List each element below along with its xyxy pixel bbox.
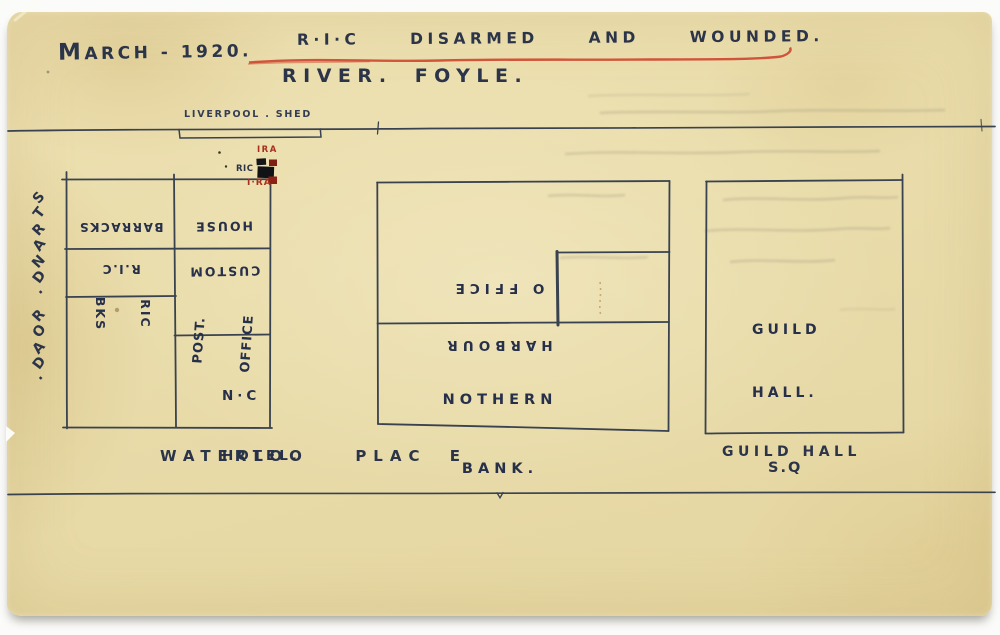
liverpool-shed-label: LIVERPOOL . SHED	[184, 109, 312, 120]
ira-black-square	[256, 158, 266, 165]
ink-speck	[225, 165, 227, 167]
title-red-underline	[248, 48, 791, 65]
ira-red-square	[269, 160, 277, 167]
label-line: HALL.	[752, 383, 821, 404]
label-line: BARRACKS	[70, 220, 172, 234]
label-line: GUILD	[752, 320, 821, 341]
marker-label-ira-upper: IRA	[257, 145, 278, 155]
ink-speck	[218, 151, 221, 154]
river-foyle-label: RIVER. FOYLE.	[282, 65, 528, 87]
liverpool-shed-outline	[179, 129, 321, 138]
ink-speck	[47, 71, 50, 74]
building-label-custom-house: CUSTOM HOUSE	[178, 188, 270, 310]
label-line: NOTHERN	[420, 389, 580, 412]
label-line: O FFICE	[420, 278, 575, 297]
marker-label-ric: RIC	[236, 164, 253, 174]
quay-tick	[981, 120, 982, 132]
marker-label-ira-lower: I·RA	[247, 178, 272, 188]
guild-hall-square-label: GUILD HALL	[722, 444, 861, 460]
label-line: R.I.C	[70, 262, 172, 276]
building-label-nothern-bank: NOTHERN BANK.	[420, 343, 580, 527]
label-line: BKS	[93, 285, 108, 343]
map-title: R·I·C DISARMED AND WOUNDED.	[297, 27, 824, 49]
strand-road-label: STRAND. ROAD.	[24, 190, 54, 381]
guild-hall-square-abbr: S.Q	[768, 460, 802, 476]
label-line: HOTEL.	[222, 446, 301, 466]
label-line: RIC	[138, 285, 153, 343]
river-quay-line	[8, 127, 995, 132]
label-line: BANK.	[420, 458, 580, 481]
quay-tick	[378, 122, 379, 134]
map-date: MARCH - 1920.	[58, 36, 252, 65]
label-line: HOUSE	[178, 218, 268, 235]
label-line: N·C	[222, 386, 301, 406]
ink-stain-streak	[600, 282, 601, 316]
building-label-guild-hall: GUILD HALL.	[752, 278, 821, 446]
label-line: POST.	[189, 297, 211, 384]
building-label-nc-hotel: N·C HOTEL.	[222, 346, 301, 506]
label-line: CUSTOM	[179, 263, 269, 280]
photographed-map: MARCH - 1920. R·I·C DISARMED AND WOUNDED…	[0, 0, 1000, 635]
